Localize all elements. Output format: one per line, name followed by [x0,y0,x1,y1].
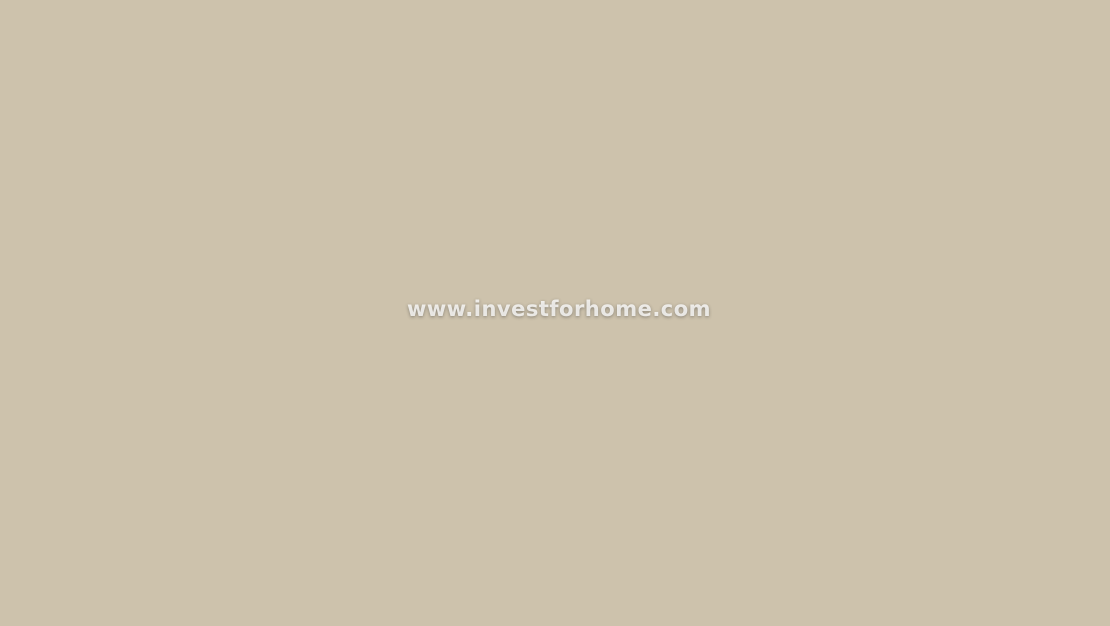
aerial-development-render: www.investforhome.com [0,0,1110,626]
scene-canvas [0,0,1110,626]
